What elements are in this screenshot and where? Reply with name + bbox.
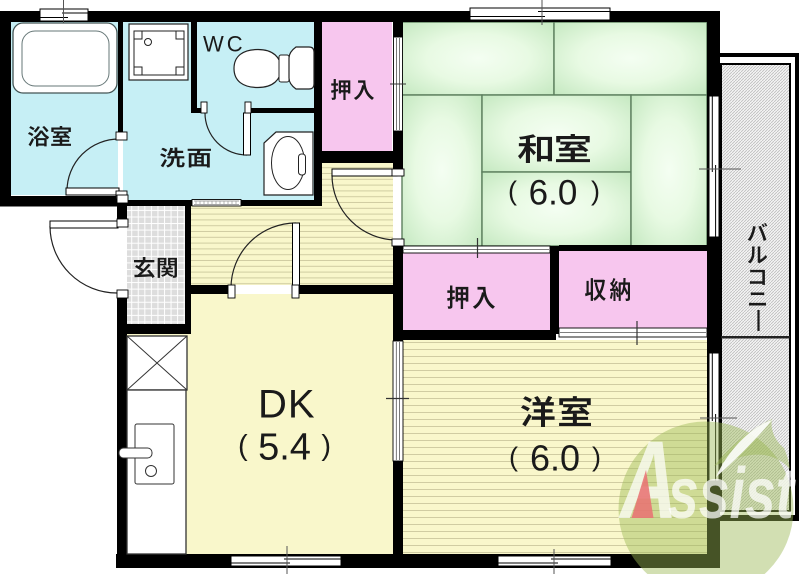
svg-text:5.4: 5.4	[258, 427, 311, 469]
svg-text:ssist: ssist	[668, 454, 796, 534]
svg-text:): )	[321, 430, 331, 462]
svg-text:6.0: 6.0	[530, 438, 580, 479]
svg-text:DK: DK	[258, 383, 316, 427]
svg-text:): )	[592, 442, 601, 472]
svg-text:WC: WC	[203, 32, 246, 57]
svg-text:): )	[591, 176, 600, 206]
svg-text:(: (	[509, 442, 518, 472]
svg-text:6.0: 6.0	[529, 174, 578, 213]
svg-text:(: (	[508, 176, 517, 206]
svg-text:(: (	[238, 430, 248, 462]
